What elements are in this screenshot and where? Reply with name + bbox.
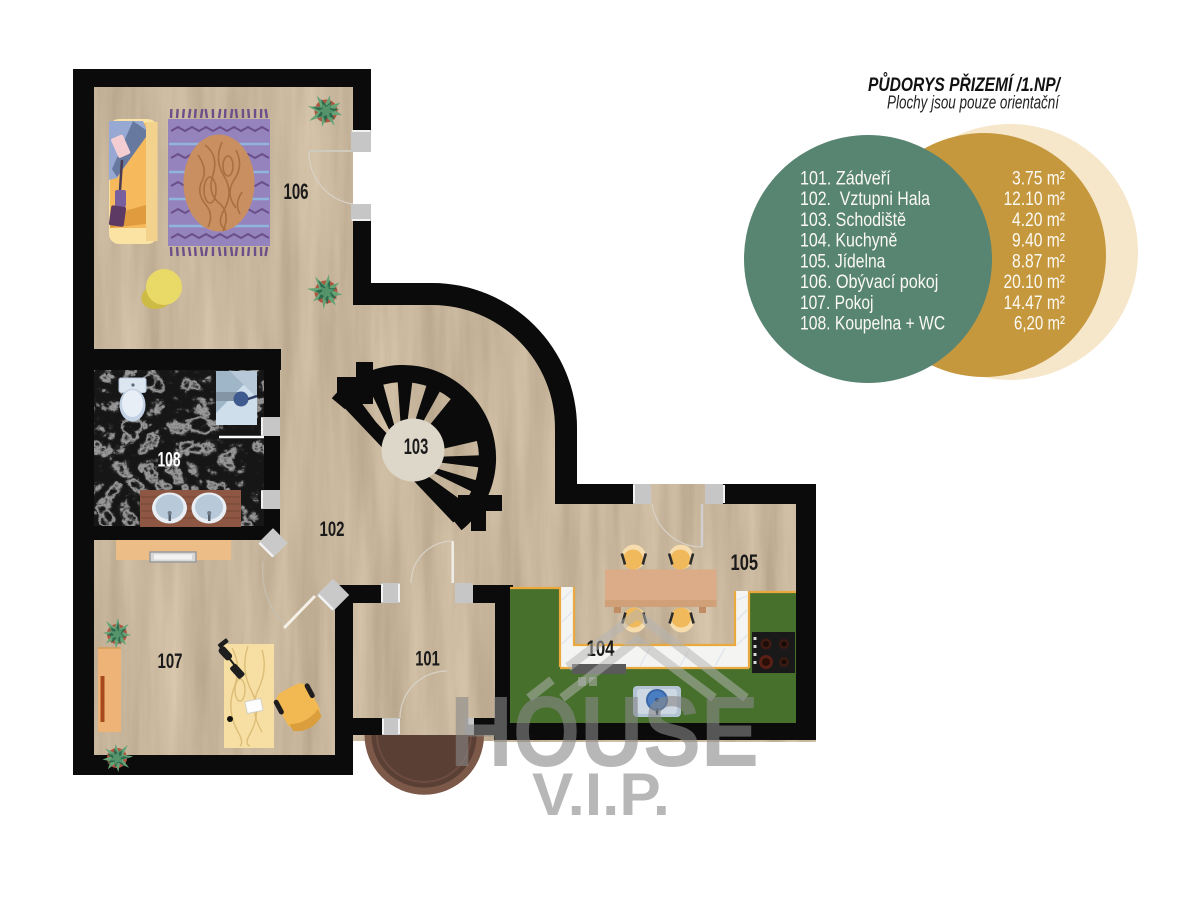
svg-text:V.I.P.: V.I.P. — [532, 761, 670, 828]
svg-text:Plochy jsou pouze orientační: Plochy jsou pouze orientační — [887, 93, 1060, 113]
svg-text:3.75 m²: 3.75 m² — [1012, 168, 1065, 189]
svg-text:14.47 m²: 14.47 m² — [1004, 293, 1066, 314]
svg-text:106. Obývací pokoj: 106. Obývací pokoj — [800, 272, 938, 293]
svg-text:107. Pokoj: 107. Pokoj — [800, 293, 874, 314]
svg-text:105: 105 — [731, 550, 759, 575]
svg-text:12.10 m²: 12.10 m² — [1004, 189, 1066, 210]
svg-text:102. Vztupni Hala: 102. Vztupni Hala — [800, 189, 930, 210]
svg-text:8.87 m²: 8.87 m² — [1012, 251, 1065, 272]
svg-text:107: 107 — [158, 650, 183, 673]
svg-text:106: 106 — [284, 179, 309, 204]
svg-text:108: 108 — [158, 449, 181, 472]
svg-text:104. Kuchyně: 104. Kuchyně — [800, 231, 897, 252]
svg-text:9.40 m²: 9.40 m² — [1012, 231, 1065, 252]
svg-text:103: 103 — [404, 434, 429, 459]
svg-text:105. Jídelna: 105. Jídelna — [800, 251, 886, 272]
svg-text:4.20 m²: 4.20 m² — [1012, 210, 1065, 231]
svg-text:102: 102 — [320, 518, 345, 541]
svg-text:101. Zádveří: 101. Zádveří — [800, 168, 891, 189]
svg-text:6,20 m²: 6,20 m² — [1014, 314, 1065, 335]
svg-text:103. Schodiště: 103. Schodiště — [800, 210, 906, 231]
svg-text:20.10 m²: 20.10 m² — [1004, 272, 1066, 293]
svg-text:101: 101 — [415, 648, 440, 671]
svg-text:108. Koupelna + WC: 108. Koupelna + WC — [800, 314, 945, 335]
